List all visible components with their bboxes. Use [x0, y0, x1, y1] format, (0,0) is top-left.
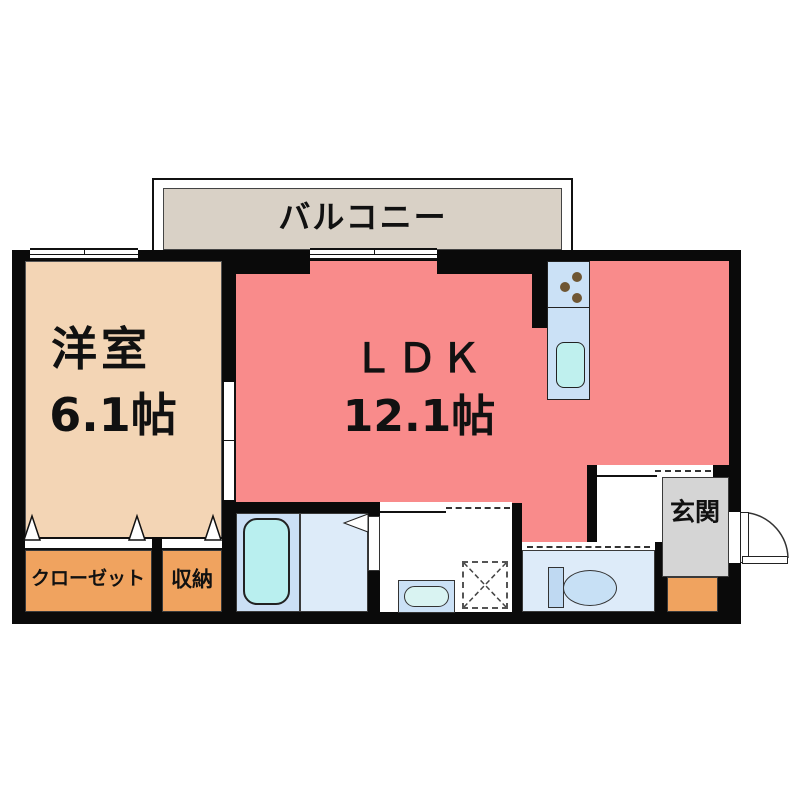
closet-door-triangle-icon	[129, 516, 145, 540]
entrance-door-swing-arc	[749, 513, 788, 558]
storage-label: 収納	[171, 570, 213, 591]
entrance-label: 玄関	[670, 500, 720, 525]
western-room-label: 洋室	[51, 326, 151, 372]
closet-label: クローゼット	[31, 570, 145, 589]
storage-door-triangle-icon	[205, 516, 221, 540]
western-room-size-label: 6.1帖	[49, 392, 177, 438]
balcony-label: バルコニー	[278, 201, 447, 233]
ldk-size-label: 12.1帖	[343, 395, 496, 439]
ldk-label: ＬＤＫ	[353, 339, 485, 379]
closet-door-triangle-icon	[24, 516, 40, 540]
bath-door-triangle-icon	[344, 514, 368, 532]
floor-plan: バルコニー 洋室 6.1帖 ＬＤＫ 12.1帖 クローゼット 収納 玄関	[0, 0, 800, 800]
